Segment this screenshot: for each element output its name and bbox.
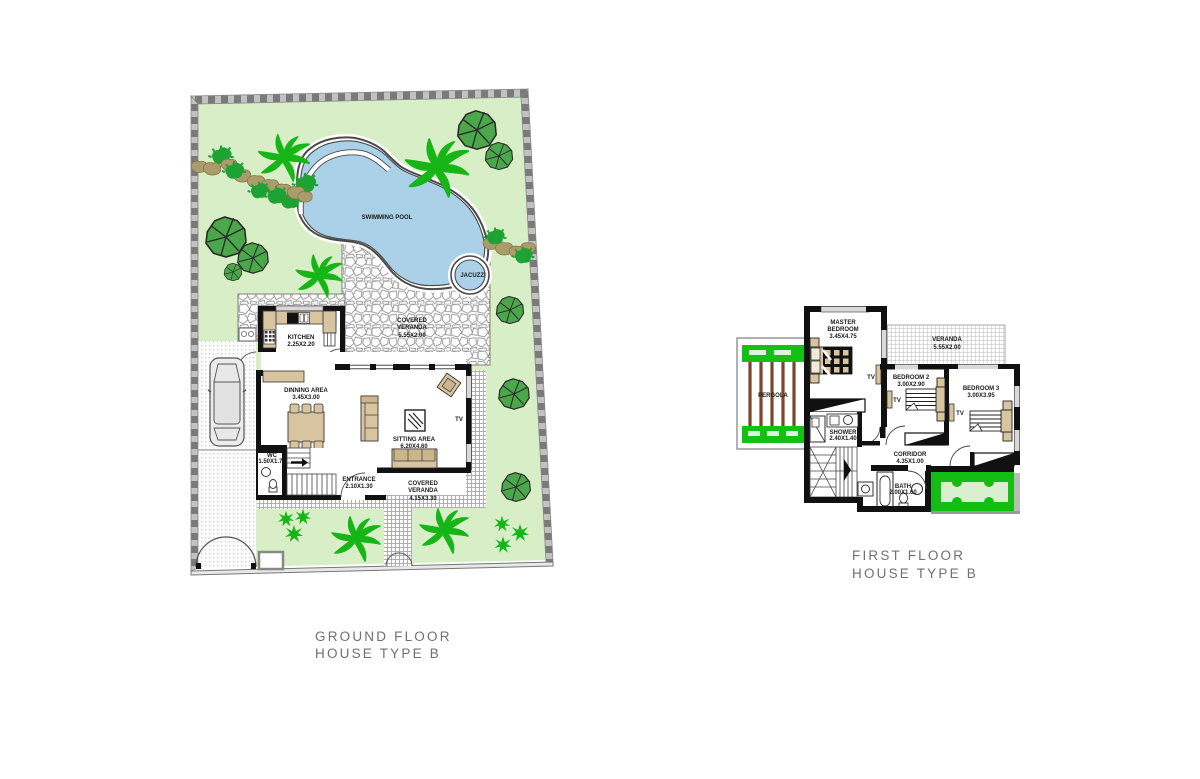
svg-text:BEDROOM 3: BEDROOM 3 (963, 386, 1000, 392)
svg-text:VERANDA: VERANDA (408, 488, 438, 494)
svg-text:COVERED: COVERED (408, 481, 438, 487)
svg-text:3.00X3.95: 3.00X3.95 (967, 393, 995, 399)
svg-text:COVERED: COVERED (397, 318, 427, 324)
svg-text:FIRST FLOOR: FIRST FLOOR (852, 548, 965, 563)
svg-text:3.45X4.75: 3.45X4.75 (829, 334, 857, 340)
svg-text:5.55X2.00: 5.55X2.00 (933, 345, 961, 351)
svg-text:BEDROOM 2: BEDROOM 2 (893, 375, 930, 381)
svg-text:TV: TV (867, 375, 875, 381)
svg-text:VERANDA: VERANDA (397, 325, 427, 331)
svg-text:BEDROOM: BEDROOM (827, 327, 858, 333)
svg-text:CORRIDOR: CORRIDOR (894, 452, 927, 458)
svg-text:3.00X2.90: 3.00X2.90 (897, 382, 925, 388)
svg-text:4.35X1.00: 4.35X1.00 (896, 459, 924, 465)
svg-text:SWIMMING POOL: SWIMMING POOL (362, 215, 413, 221)
svg-text:5.55X2.00: 5.55X2.00 (398, 333, 426, 339)
svg-text:GROUND FLOOR: GROUND FLOOR (315, 629, 452, 644)
svg-text:MASTER: MASTER (830, 320, 856, 326)
svg-text:KITCHEN: KITCHEN (288, 335, 315, 341)
svg-text:TV: TV (455, 417, 463, 423)
svg-text:3.45X3.00: 3.45X3.00 (292, 395, 320, 401)
svg-text:1.50X1.70: 1.50X1.70 (258, 459, 286, 465)
svg-text:HOUSE TYPE B: HOUSE TYPE B (315, 646, 441, 661)
svg-text:2.00X1.60: 2.00X1.60 (889, 490, 917, 496)
svg-text:2.40X1.40: 2.40X1.40 (829, 436, 857, 442)
svg-text:TV: TV (893, 398, 901, 404)
svg-text:DINNING AREA: DINNING AREA (284, 388, 328, 394)
svg-text:VERANDA: VERANDA (932, 337, 962, 343)
svg-text:JACUZZI: JACUZZI (460, 273, 486, 279)
svg-text:2.10X1.30: 2.10X1.30 (345, 484, 373, 490)
svg-text:ENTRANCE: ENTRANCE (342, 477, 375, 483)
svg-text:2.25X2.20: 2.25X2.20 (287, 342, 315, 348)
svg-text:TV: TV (956, 411, 964, 417)
svg-text:PERGOLA: PERGOLA (758, 393, 788, 399)
svg-text:HOUSE TYPE B: HOUSE TYPE B (852, 566, 978, 581)
svg-text:4.15X3.30: 4.15X3.30 (409, 496, 437, 502)
svg-text:SITTING AREA: SITTING AREA (393, 437, 436, 443)
